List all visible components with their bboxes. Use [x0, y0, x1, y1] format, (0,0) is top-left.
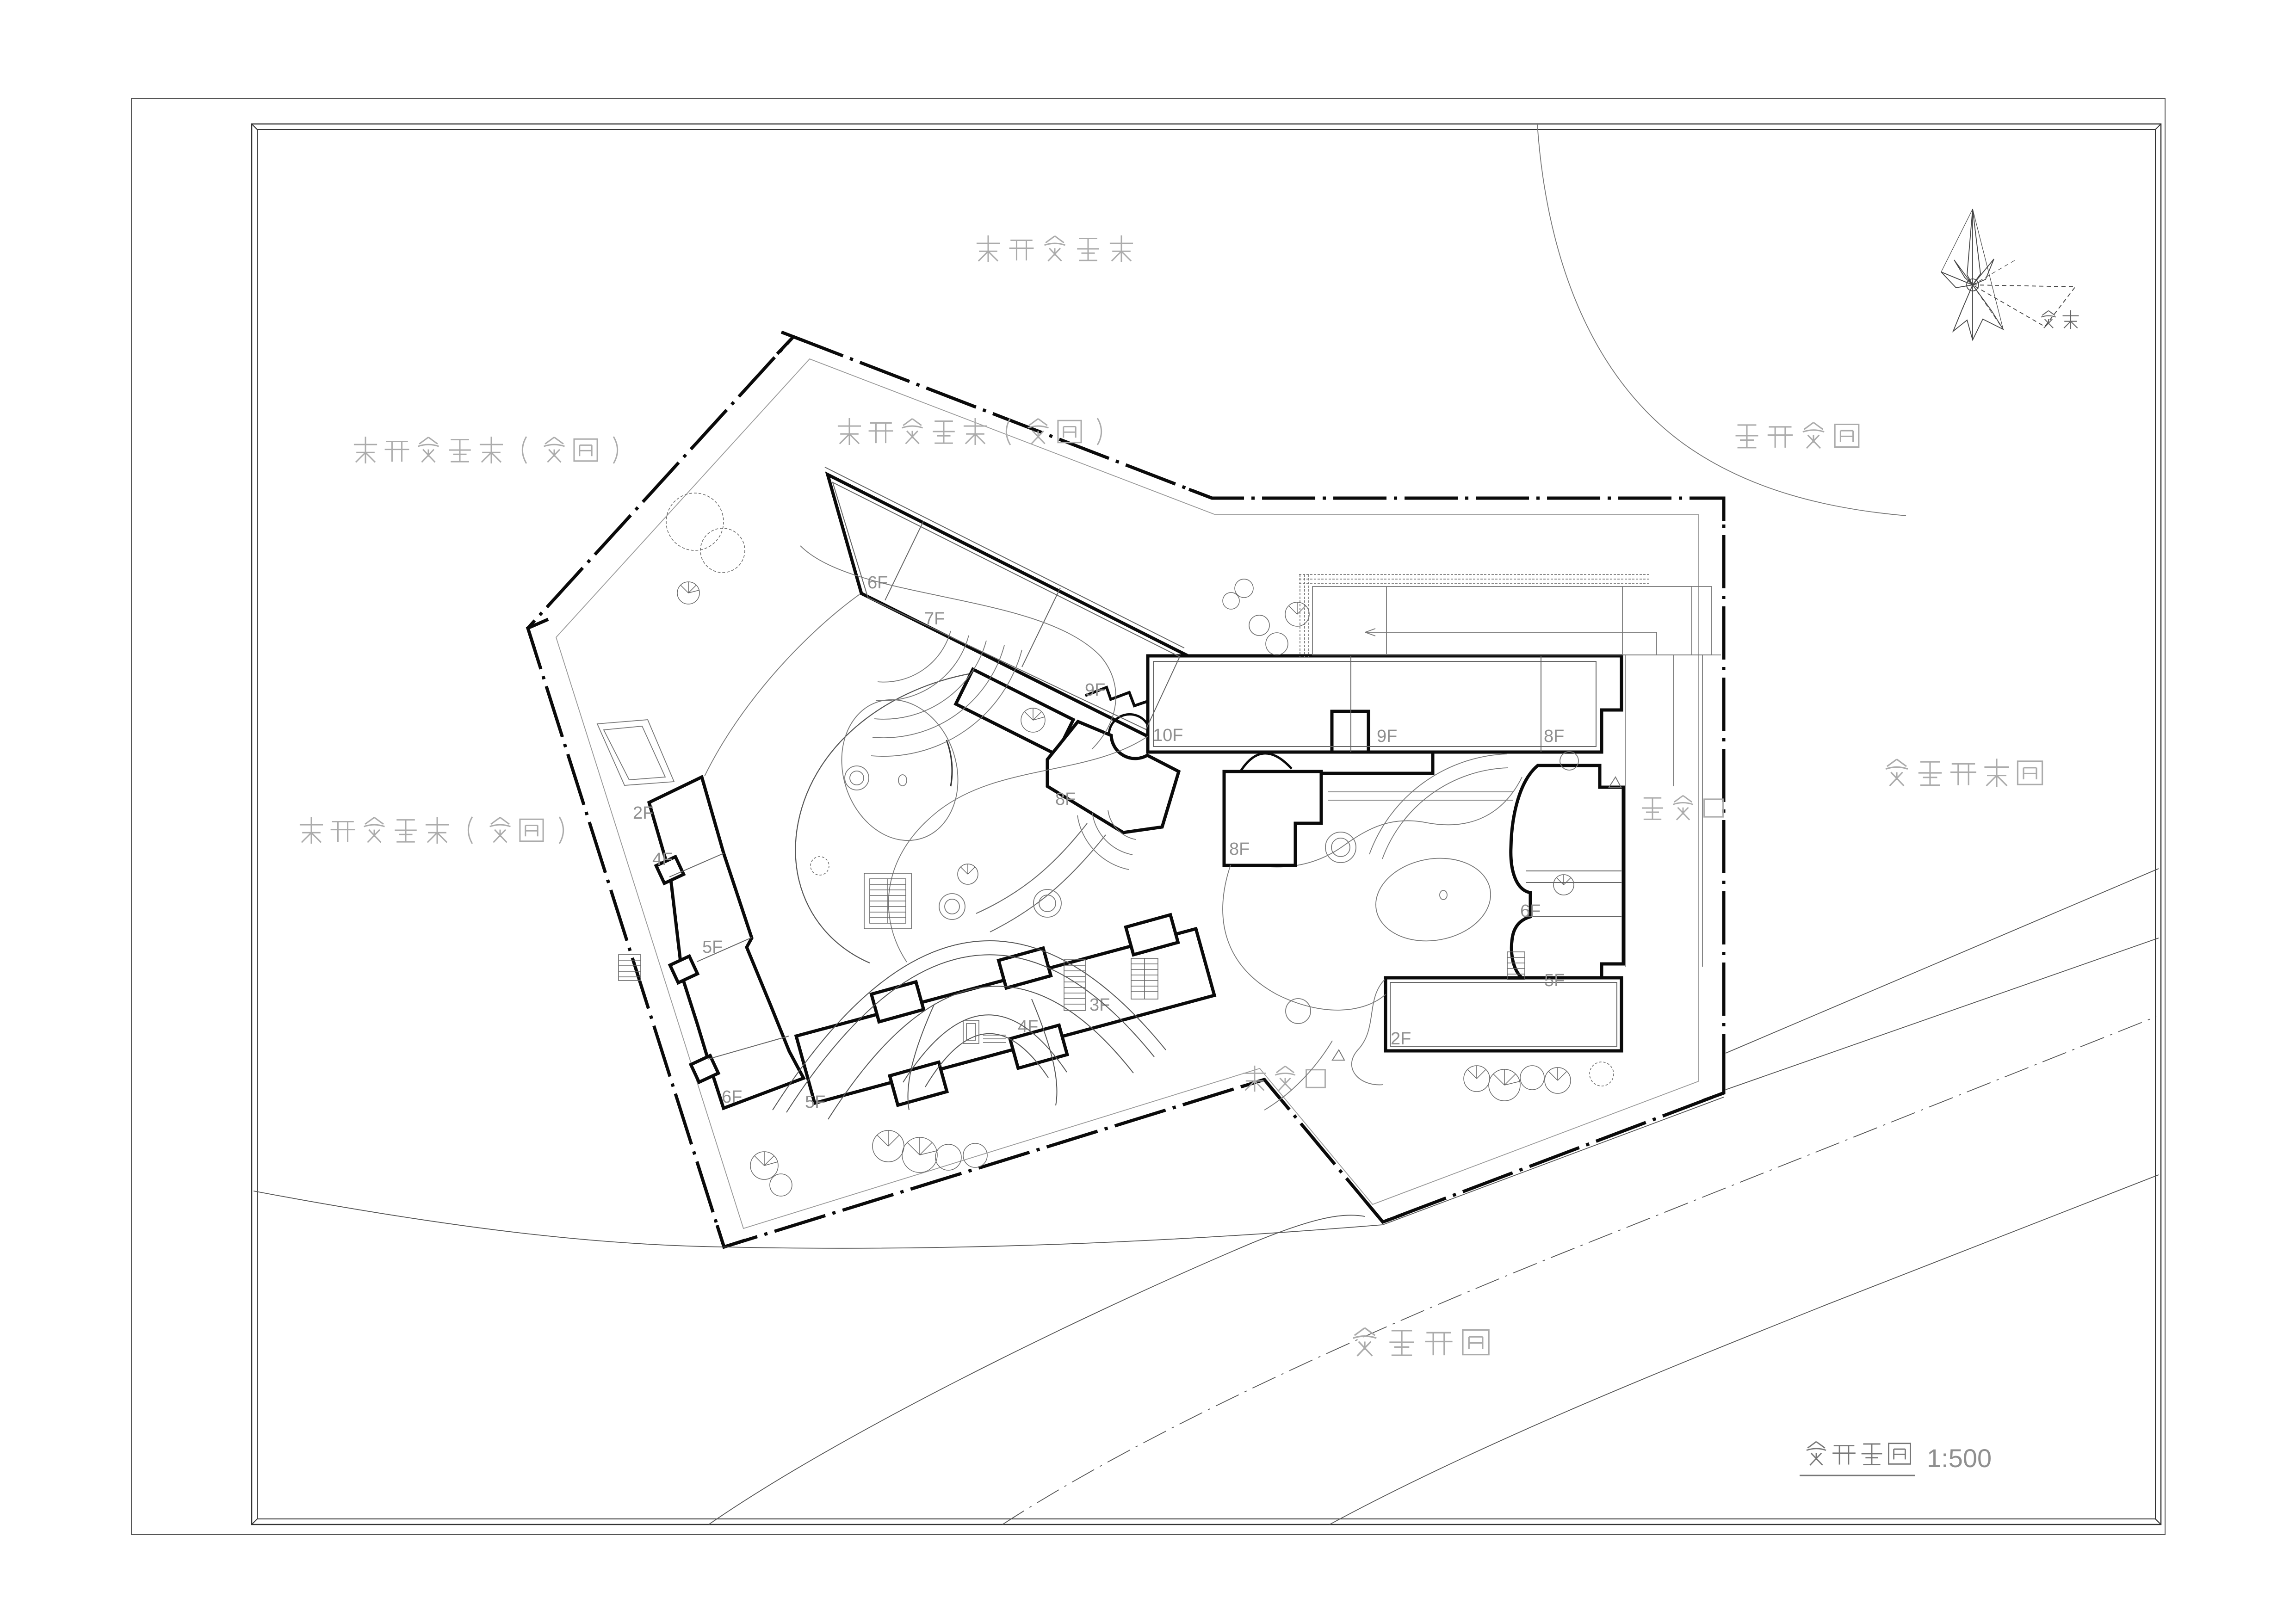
svg-text:6F: 6F	[1520, 901, 1541, 921]
svg-text:6F: 6F	[867, 573, 888, 592]
svg-text:5F: 5F	[1544, 971, 1565, 990]
svg-text:5F: 5F	[805, 1092, 825, 1112]
svg-text:10F: 10F	[1153, 726, 1183, 745]
svg-text:1:500: 1:500	[1927, 1444, 1992, 1473]
svg-text:6F: 6F	[722, 1087, 742, 1107]
svg-text:5F: 5F	[702, 938, 723, 957]
svg-text:2F: 2F	[633, 803, 653, 823]
svg-text:8F: 8F	[1229, 839, 1250, 859]
svg-text:9F: 9F	[1085, 680, 1105, 700]
svg-text:8F: 8F	[1544, 727, 1564, 746]
svg-text:4F: 4F	[652, 850, 673, 869]
svg-text:7F: 7F	[924, 609, 945, 629]
svg-text:4F: 4F	[1018, 1017, 1038, 1037]
svg-text:2F: 2F	[1391, 1029, 1411, 1049]
svg-text:9F: 9F	[1377, 727, 1397, 746]
svg-text:8F: 8F	[1055, 790, 1076, 809]
svg-text:3F: 3F	[1089, 995, 1110, 1015]
